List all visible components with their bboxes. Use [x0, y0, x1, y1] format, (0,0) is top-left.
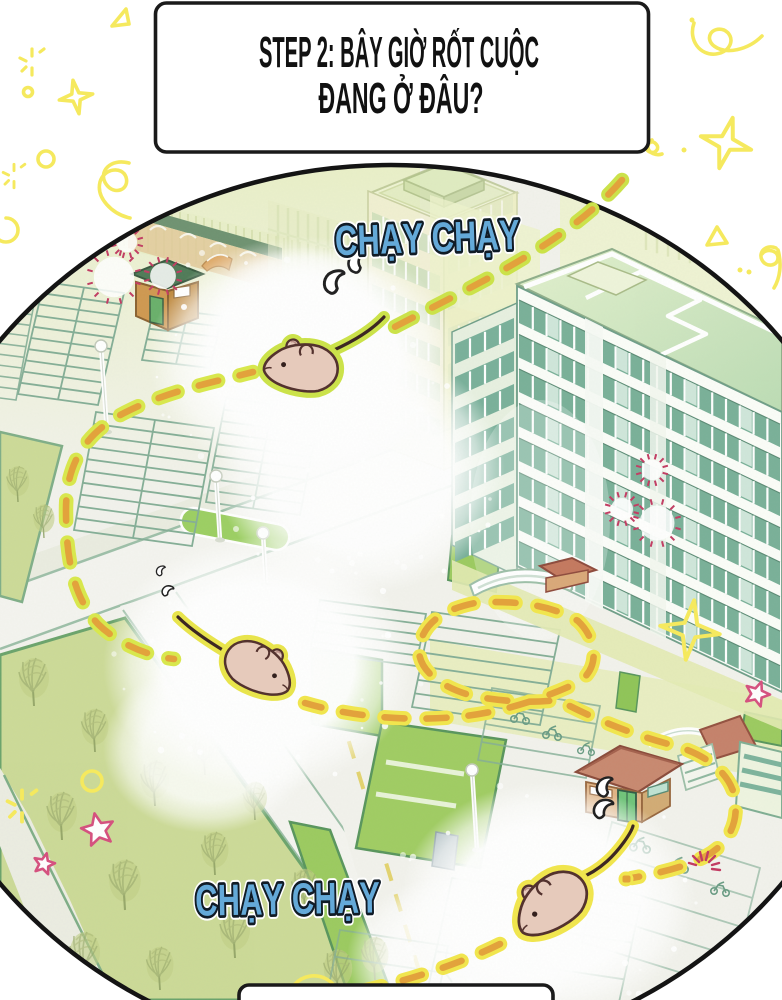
svg-text:CHẠY CHẠY: CHẠY CHẠY: [334, 211, 521, 264]
svg-text:STEP 2: BÂY GIỜ RỐT CUỘC: STEP 2: BÂY GIỜ RỐT CUỘC: [259, 26, 539, 77]
svg-text:ĐANG Ở ĐÂU?: ĐANG Ở ĐÂU?: [319, 72, 484, 123]
svg-text:CHẠY CHẠY: CHẠY CHẠY: [195, 873, 381, 925]
